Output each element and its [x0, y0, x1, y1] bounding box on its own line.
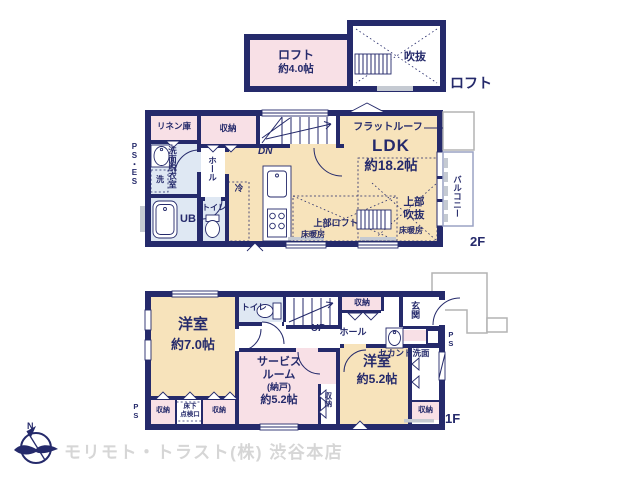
upper-loft-label: 上部ロフト [312, 218, 360, 228]
ps-left-label: PS [131, 402, 139, 420]
floor-plan-page: ロフト 約4.0帖 吹抜 ロフト リネン庫 収納 DN フラットルーフ LDK … [0, 0, 640, 480]
door-gap [205, 197, 221, 201]
entrance-step [487, 318, 507, 332]
upper-void-label-2: 吹抜 [398, 210, 430, 222]
underfloor-label-2: 点検口 [177, 411, 203, 418]
floor-heating-label-right: 床暖房 [394, 227, 428, 236]
void-label: 吹抜 [395, 51, 435, 63]
room5-size-label: 約5.2帖 [342, 373, 412, 386]
room5-label: 洋室 [347, 354, 407, 370]
loft-room-label: ロフト [256, 49, 336, 62]
f2-floor-label: 2F [470, 235, 485, 250]
balcony-label: バルコニー [452, 175, 462, 218]
closet-mid-label: 収納 [324, 392, 332, 407]
door-gap [235, 329, 239, 351]
stairs-up-label: UP [311, 323, 325, 334]
entrance-label: 玄関 [410, 301, 420, 319]
service-room-label-4: 約5.2帖 [247, 394, 311, 406]
fridge-label: 冷 [230, 184, 248, 194]
stairs-dn-label: DN [258, 146, 272, 157]
f1-floor-label: 1F [445, 412, 460, 427]
flat-roof-label: フラットルーフ [352, 122, 424, 133]
room7-label: 洋室 [163, 317, 223, 334]
f2-closet-label: 収納 [203, 124, 253, 134]
ldk-size-label: 約18.2帖 [352, 158, 430, 173]
room7-size-label: 約7.0帖 [158, 338, 228, 353]
door-gap [344, 344, 366, 348]
service-room-label-3: (納戸) [247, 382, 311, 392]
closet-bl2-label: 収納 [203, 407, 235, 415]
f2-stairs-area [259, 116, 336, 144]
door-gap [225, 152, 229, 174]
ladder-icon [357, 210, 391, 229]
washer-label: 洗 [153, 176, 167, 185]
ub-label: UB [177, 213, 199, 225]
flat-roof-area [443, 112, 474, 150]
kitchen-counter [263, 166, 291, 241]
upper-void-label-1: 上部 [398, 197, 430, 209]
service-room-label-2: ルーム [247, 369, 311, 381]
ps-right-label: PS [446, 330, 454, 348]
ps-box [427, 330, 439, 344]
loft-floor-label: ロフト [450, 76, 492, 92]
service-room-label-1: サービス [247, 356, 311, 368]
f2-toilet-label: トイレ [201, 204, 227, 213]
floor-heating-label-left: 床暖房 [296, 231, 330, 240]
bathtub-icon [153, 201, 177, 238]
closet-top-label: 収納 [343, 299, 381, 308]
f1-hall-label: ホール [336, 327, 370, 337]
company-name: モリモト・トラスト(株) 渋谷本店 [64, 438, 343, 463]
gable-mark [350, 103, 384, 112]
closet-right-label: 収納 [412, 406, 439, 414]
toilet-icon [206, 215, 220, 238]
f1-toilet-label: トイレ [240, 303, 268, 313]
ldk-label: LDK [365, 136, 417, 155]
stove-icon [268, 209, 287, 237]
ladder-icon [355, 54, 391, 74]
window-sill [377, 86, 413, 91]
door-gap [296, 348, 318, 352]
washbasin-icon [386, 328, 403, 348]
f2-hall-label: ホール [207, 156, 217, 182]
closet-bl1-label: 収納 [150, 407, 176, 415]
linen-label: リネン庫 [149, 122, 199, 132]
loft-room-size: 約4.0帖 [256, 64, 336, 76]
ps-es-label: PS・ES [129, 142, 138, 186]
underfloor-label-1: 床下 [177, 403, 203, 410]
shoe-cabinet [403, 330, 429, 341]
compass-n-label: N [27, 421, 34, 431]
door-gap [197, 152, 201, 172]
compass-icon [14, 426, 58, 463]
washroom-label: 洗面脱衣室 [167, 146, 177, 189]
